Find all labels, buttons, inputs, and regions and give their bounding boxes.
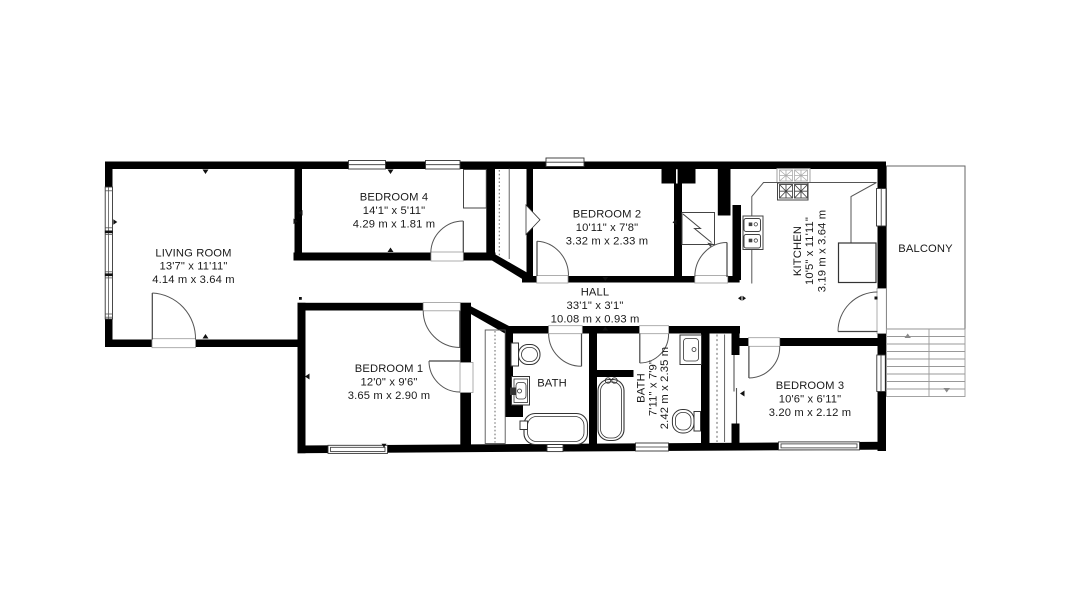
svg-text:13'7" x 11'11": 13'7" x 11'11" bbox=[159, 261, 227, 273]
svg-text:KITCHEN: KITCHEN bbox=[792, 226, 804, 276]
svg-text:7'11" x 7'9": 7'11" x 7'9" bbox=[647, 360, 659, 416]
svg-text:3.65 m x 2.90 m: 3.65 m x 2.90 m bbox=[348, 390, 430, 402]
svg-text:10'5" x 11'11": 10'5" x 11'11" bbox=[804, 217, 816, 285]
svg-text:BEDROOM 3: BEDROOM 3 bbox=[776, 380, 845, 392]
svg-text:10'11" x 7'8": 10'11" x 7'8" bbox=[576, 222, 638, 234]
svg-text:BATH: BATH bbox=[537, 378, 567, 390]
svg-text:3.19 m x 3.64 m: 3.19 m x 3.64 m bbox=[817, 210, 829, 292]
svg-text:2.42 m x 2.35 m: 2.42 m x 2.35 m bbox=[659, 347, 671, 429]
svg-text:10'6" x 6'11": 10'6" x 6'11" bbox=[779, 394, 841, 406]
svg-text:BEDROOM 4: BEDROOM 4 bbox=[360, 192, 429, 204]
svg-text:3.32 m x 2.33 m: 3.32 m x 2.33 m bbox=[566, 236, 648, 248]
svg-text:4.14 m x 3.64 m: 4.14 m x 3.64 m bbox=[152, 274, 234, 286]
svg-text:BALCONY: BALCONY bbox=[898, 243, 953, 255]
svg-text:HALL: HALL bbox=[581, 287, 610, 299]
svg-text:LIVING ROOM: LIVING ROOM bbox=[155, 248, 231, 260]
svg-text:4.29 m x 1.81 m: 4.29 m x 1.81 m bbox=[353, 219, 435, 231]
svg-text:BEDROOM 1: BEDROOM 1 bbox=[355, 363, 424, 375]
svg-text:BATH: BATH bbox=[636, 373, 648, 403]
svg-text:BEDROOM 2: BEDROOM 2 bbox=[573, 209, 642, 221]
svg-text:14'1" x 5'11": 14'1" x 5'11" bbox=[363, 205, 425, 217]
svg-text:33'1" x 3'1": 33'1" x 3'1" bbox=[567, 300, 624, 312]
svg-text:3.20 m x 2.12 m: 3.20 m x 2.12 m bbox=[769, 407, 851, 419]
svg-text:10.08 m x 0.93 m: 10.08 m x 0.93 m bbox=[551, 314, 640, 326]
svg-text:12'0" x 9'6": 12'0" x 9'6" bbox=[361, 377, 418, 389]
